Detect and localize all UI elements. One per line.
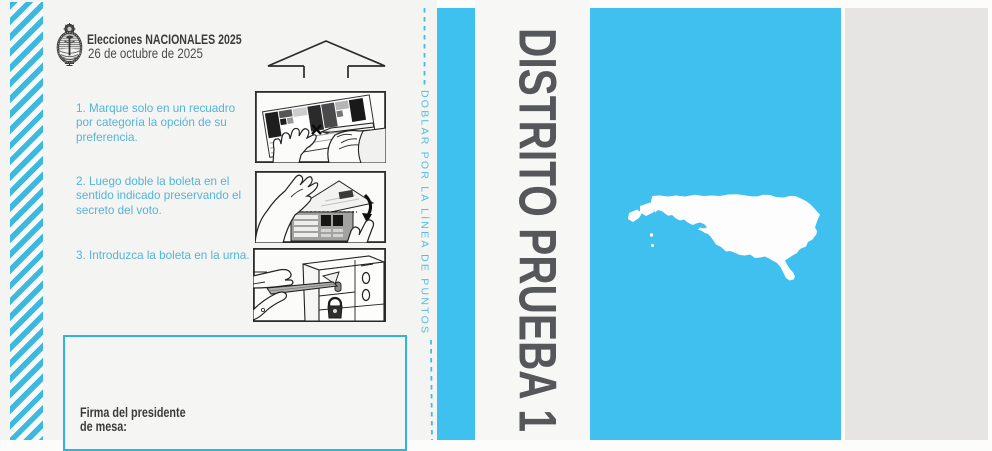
svg-text:DISTRITO PRUEBA 1: DISTRITO PRUEBA 1 — [508, 28, 567, 432]
svg-text:DOBLAR POR LA LÍNEA DE PUNTOS: DOBLAR POR LA LÍNEA DE PUNTOS — [419, 90, 432, 333]
